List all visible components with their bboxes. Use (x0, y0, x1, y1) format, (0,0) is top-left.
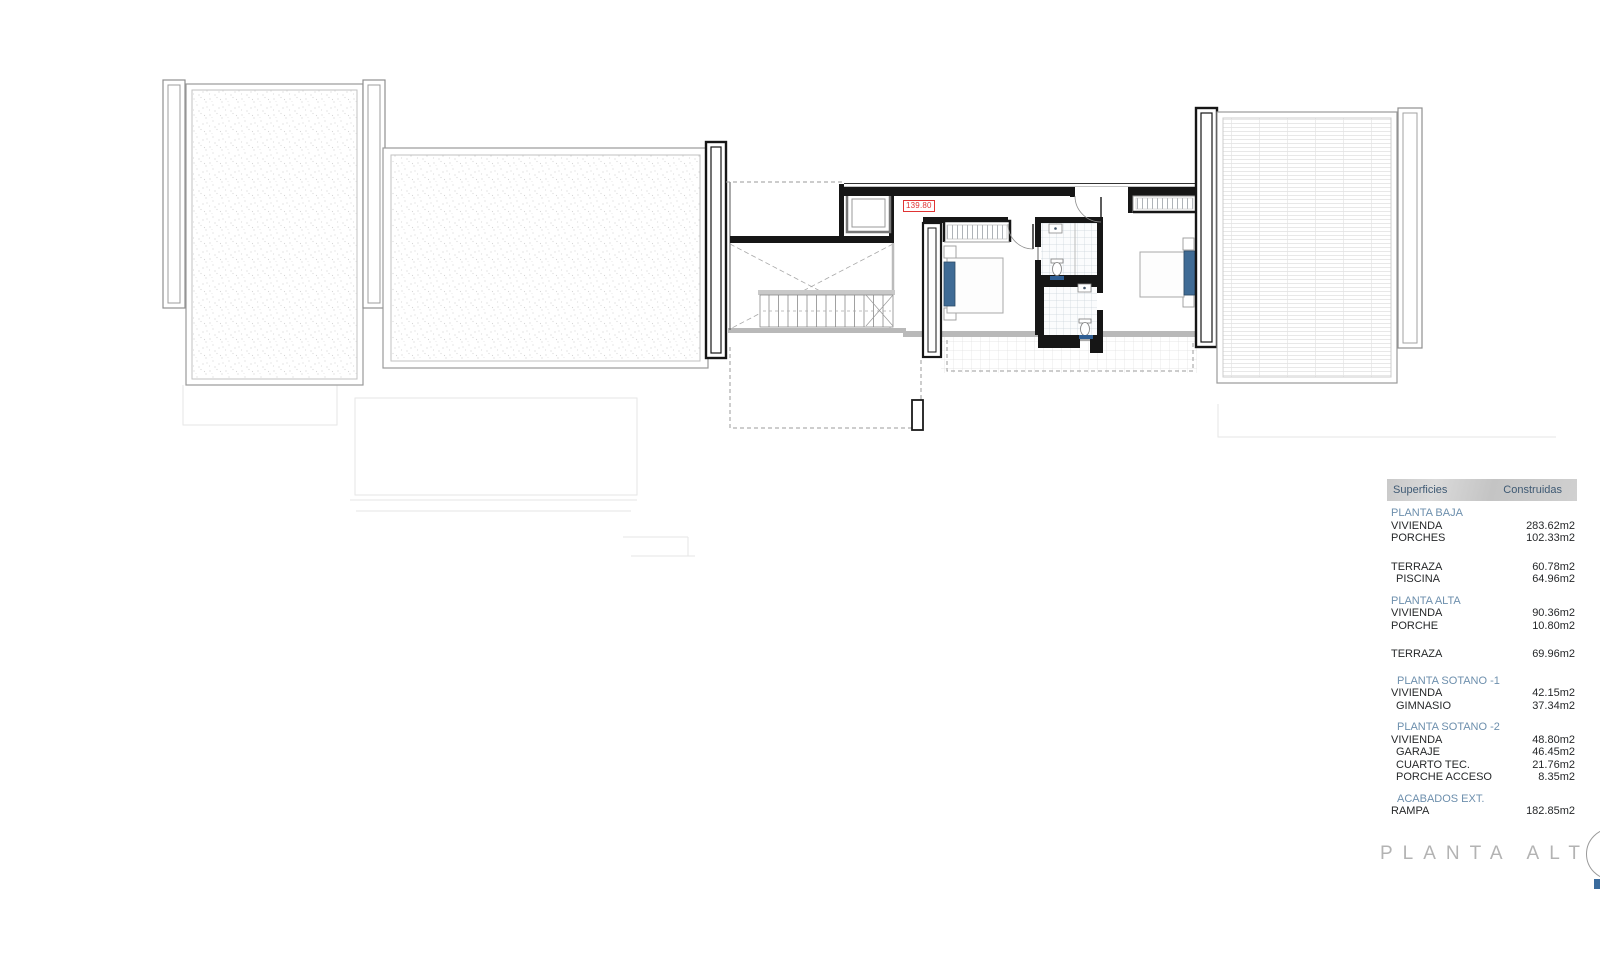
section-sotano-1: PLANTA SOTANO -1 VIVIENDA 42.15m2 GIMNAS… (1387, 675, 1577, 713)
row-value: 102.33m2 (1526, 532, 1575, 545)
section-title: PLANTA BAJA (1387, 507, 1577, 520)
sink-2 (1078, 284, 1091, 292)
section-title: PLANTA SOTANO -2 (1387, 721, 1577, 734)
row-value: 283.62m2 (1526, 520, 1575, 533)
table-row: VIVIENDA 90.36m2 (1387, 607, 1577, 620)
column (912, 400, 923, 430)
terrace-right-deck (1217, 108, 1422, 383)
closet-2 (1133, 196, 1196, 212)
section-title: PLANTA ALTA (1387, 595, 1577, 608)
logo-mark (1594, 879, 1600, 889)
row-label: PORCHE (1391, 620, 1438, 633)
table-row: GIMNASIO 37.34m2 (1387, 700, 1577, 713)
header-col-construidas: Construidas (1503, 484, 1562, 496)
page-title: PLANTAALTA (1380, 843, 1600, 865)
section-planta-baja: PLANTA BAJA VIVIENDA 283.62m2 PORCHES 10… (1387, 507, 1577, 545)
row-label: TERRAZA (1391, 561, 1442, 574)
closet-1 (944, 221, 1010, 242)
table-row: CUARTO TEC. 21.76m2 (1387, 759, 1577, 772)
window-wall-bedroom1 (923, 223, 941, 357)
terrace-left (163, 80, 385, 385)
under-level-outline (183, 385, 1556, 556)
header-col-superficies: Superficies (1393, 484, 1447, 496)
row-value: 42.15m2 (1532, 687, 1575, 700)
row-label: GIMNASIO (1391, 700, 1451, 713)
table-row: PORCHE 10.80m2 (1387, 620, 1577, 633)
row-label: VIVIENDA (1391, 520, 1442, 533)
row-label: VIVIENDA (1391, 607, 1442, 620)
section-terraza-baja: TERRAZA 60.78m2 PISCINA 64.96m2 (1387, 561, 1577, 586)
door-bedroom1 (1008, 224, 1033, 249)
section-sotano-2: PLANTA SOTANO -2 VIVIENDA 48.80m2 GARAJE… (1387, 721, 1577, 784)
drawing-sheet: 139.80 Superficies Construidas PLANTA BA… (0, 0, 1600, 956)
table-row: GARAJE 46.45m2 (1387, 746, 1577, 759)
row-value: 60.78m2 (1532, 561, 1575, 574)
sink-1 (1049, 224, 1062, 233)
table-row: VIVIENDA 48.80m2 (1387, 734, 1577, 747)
row-label: RAMPA (1391, 805, 1429, 818)
table-row: TERRAZA 60.78m2 (1387, 561, 1577, 574)
bath-mat-1 (1050, 276, 1064, 280)
row-label: VIVIENDA (1391, 687, 1442, 700)
bed-2-headboard (1184, 251, 1195, 295)
pergola-bar-right (363, 80, 385, 308)
dimension-label: 139.80 (903, 200, 935, 212)
row-value: 46.45m2 (1532, 746, 1575, 759)
row-label: TERRAZA (1391, 648, 1442, 661)
bed-1-headboard (944, 262, 955, 306)
row-value: 37.34m2 (1532, 700, 1575, 713)
row-value: 48.80m2 (1532, 734, 1575, 747)
title-word-planta: PLANTA (1380, 843, 1513, 864)
table-row: VIVIENDA 42.15m2 (1387, 687, 1577, 700)
table-row: RAMPA 182.85m2 (1387, 805, 1577, 818)
pergola-bar-left (163, 80, 185, 308)
row-value: 69.96m2 (1532, 648, 1575, 661)
bed-1 (944, 246, 1003, 320)
row-label: CUARTO TEC. (1391, 759, 1470, 772)
row-value: 8.35m2 (1538, 771, 1575, 784)
bathroom-2 (1038, 281, 1103, 353)
row-value: 64.96m2 (1532, 573, 1575, 586)
row-value: 182.85m2 (1526, 805, 1575, 818)
table-row: PORCHE ACCESO 8.35m2 (1387, 771, 1577, 784)
porch-dashed-outline (730, 347, 921, 428)
window-wall-right (1196, 108, 1217, 347)
row-value: 10.80m2 (1532, 620, 1575, 633)
section-planta-alta: PLANTA ALTA VIVIENDA 90.36m2 PORCHE 10.8… (1387, 595, 1577, 633)
table-row: VIVIENDA 283.62m2 (1387, 520, 1577, 533)
row-value: 21.76m2 (1532, 759, 1575, 772)
terrace-center (383, 148, 708, 368)
section-acabados: ACABADOS EXT. RAMPA 182.85m2 (1387, 793, 1577, 818)
table-row: PISCINA 64.96m2 (1387, 573, 1577, 586)
row-value: 90.36m2 (1532, 607, 1575, 620)
skylight (847, 194, 890, 232)
slab-edge-band (728, 328, 1196, 337)
table-row: PORCHES 102.33m2 (1387, 532, 1577, 545)
row-label: PISCINA (1391, 573, 1440, 586)
row-label: PORCHE ACCESO (1391, 771, 1492, 784)
floor-plan (0, 0, 1600, 956)
row-label: VIVIENDA (1391, 734, 1442, 747)
section-title: PLANTA SOTANO -1 (1387, 675, 1577, 688)
stairs (758, 290, 895, 327)
table-header: Superficies Construidas (1387, 479, 1577, 501)
pergola-bar-far-right (1398, 108, 1422, 348)
section-title: ACABADOS EXT. (1387, 793, 1577, 806)
row-label: GARAJE (1391, 746, 1440, 759)
table-row: TERRAZA 69.96m2 (1387, 648, 1577, 661)
bed-2 (1140, 238, 1195, 307)
section-terraza-alta: TERRAZA 69.96m2 (1387, 648, 1577, 661)
bath-mat-2 (1079, 335, 1093, 339)
window-wall-left (706, 142, 726, 358)
row-label: PORCHES (1391, 532, 1445, 545)
surface-table: Superficies Construidas PLANTA BAJA VIVI… (1387, 479, 1577, 818)
